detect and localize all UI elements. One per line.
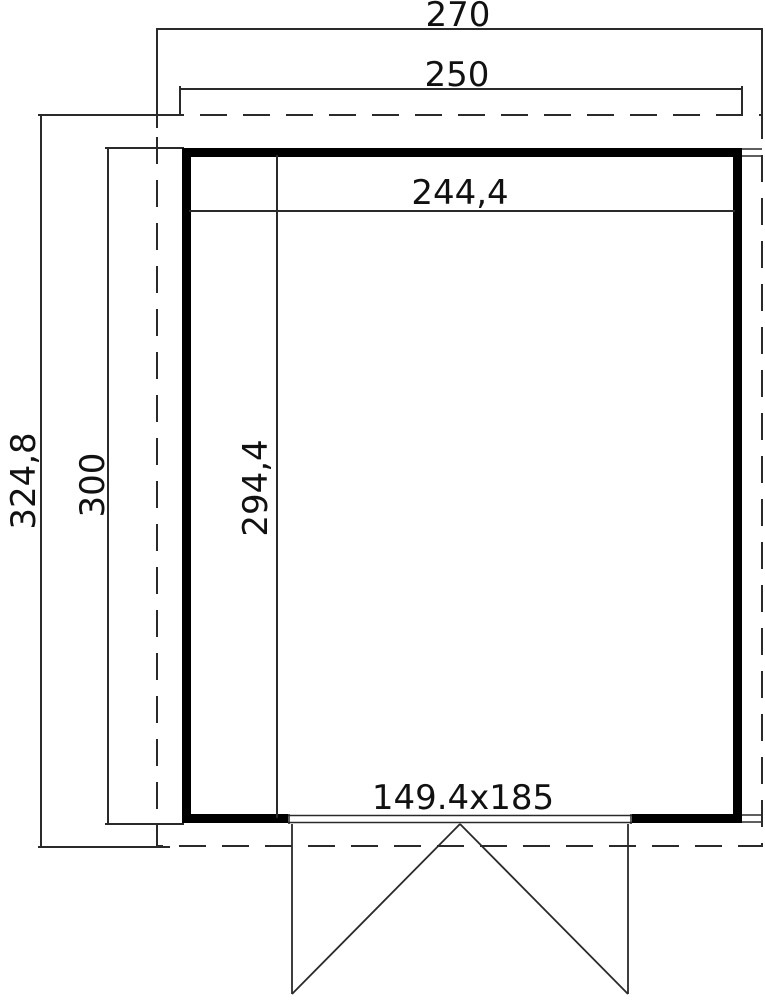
dimension-door-size: 149.4x185 bbox=[372, 778, 554, 818]
floor-plan-page: 270 250 324,8 300 bbox=[0, 0, 765, 1000]
dim-label-overall-width: 270 bbox=[426, 0, 491, 35]
dim-label-base-depth: 300 bbox=[73, 453, 113, 518]
dim-label-overall-depth: 324,8 bbox=[4, 432, 44, 529]
dim-label-door-size: 149.4x185 bbox=[372, 778, 554, 818]
door-swing-line bbox=[460, 824, 628, 994]
dimension-base-depth: 300 bbox=[73, 147, 184, 825]
dim-label-base-width: 250 bbox=[425, 55, 490, 95]
door-swing-line bbox=[292, 824, 460, 994]
door bbox=[288, 812, 632, 994]
dimension-base-width: 250 bbox=[180, 55, 742, 116]
dim-label-interior-depth: 294,4 bbox=[236, 439, 276, 536]
dim-label-interior-width: 244,4 bbox=[411, 173, 508, 213]
dimension-interior-width: 244,4 bbox=[189, 173, 735, 213]
wall-edge-extensions bbox=[742, 149, 762, 822]
floor-plan-drawing: 270 250 324,8 300 bbox=[0, 0, 765, 1000]
dimension-interior-depth: 294,4 bbox=[236, 155, 277, 818]
